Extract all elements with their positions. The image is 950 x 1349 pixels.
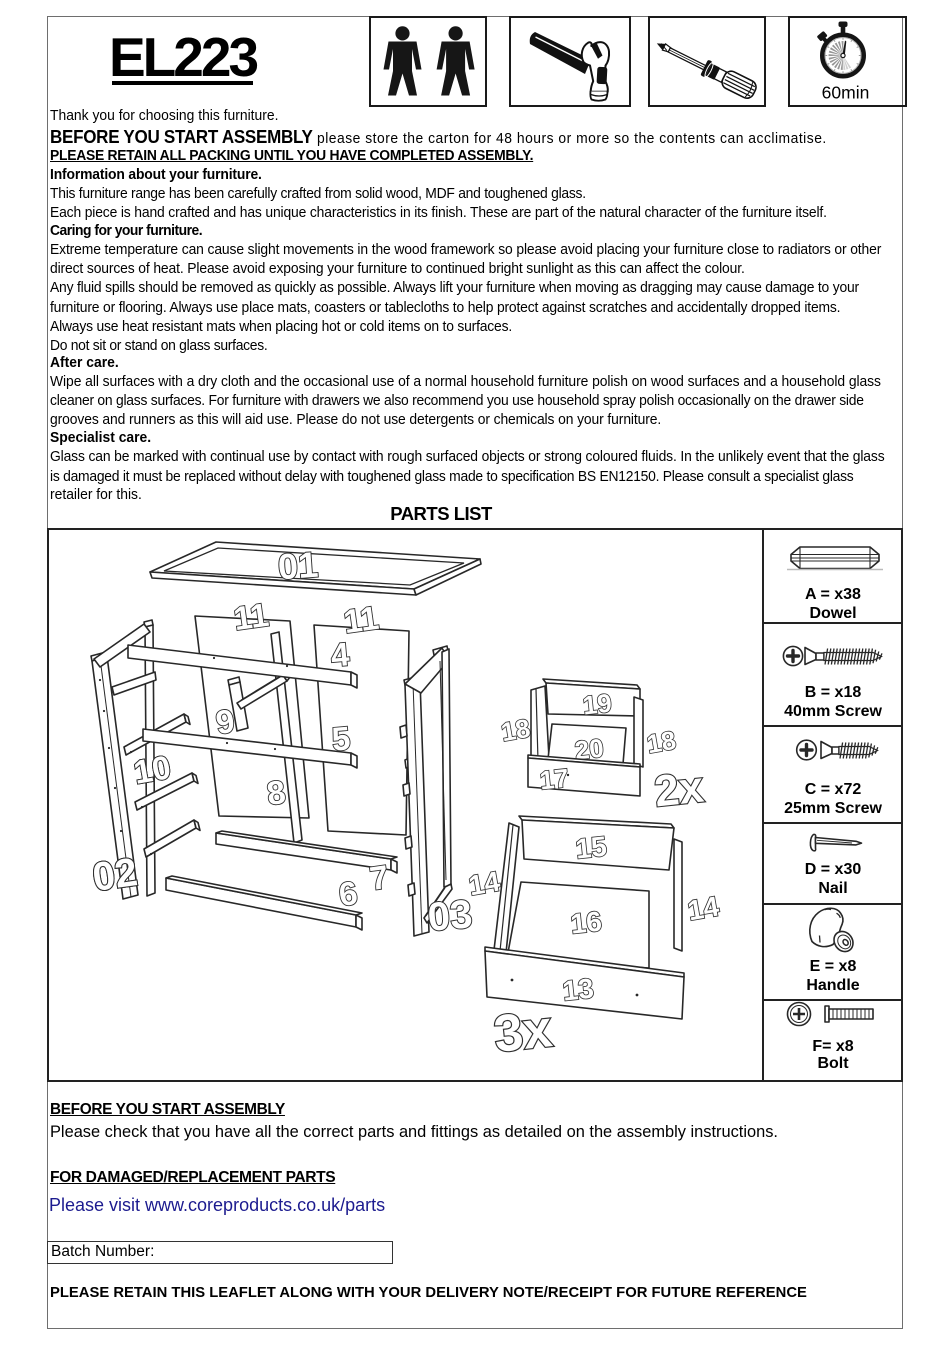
svg-text:10: 10: [131, 748, 174, 791]
svg-text:2x: 2x: [652, 763, 706, 817]
svg-text:60min: 60min: [822, 83, 870, 103]
svg-text:18: 18: [499, 713, 533, 748]
svg-text:18: 18: [645, 725, 679, 760]
svg-text:01: 01: [277, 544, 320, 588]
svg-text:13: 13: [561, 972, 595, 1006]
svg-text:16: 16: [569, 905, 603, 939]
svg-text:11: 11: [231, 596, 271, 637]
svg-text:5: 5: [330, 719, 352, 757]
svg-text:3x: 3x: [491, 1000, 555, 1064]
svg-text:14: 14: [685, 890, 721, 926]
svg-text:03: 03: [426, 892, 474, 940]
svg-text:17: 17: [538, 763, 570, 796]
svg-text:14: 14: [466, 865, 502, 901]
svg-text:02: 02: [90, 850, 140, 900]
svg-text:19: 19: [581, 688, 613, 721]
svg-text:15: 15: [574, 830, 608, 864]
svg-text:11: 11: [341, 599, 381, 640]
